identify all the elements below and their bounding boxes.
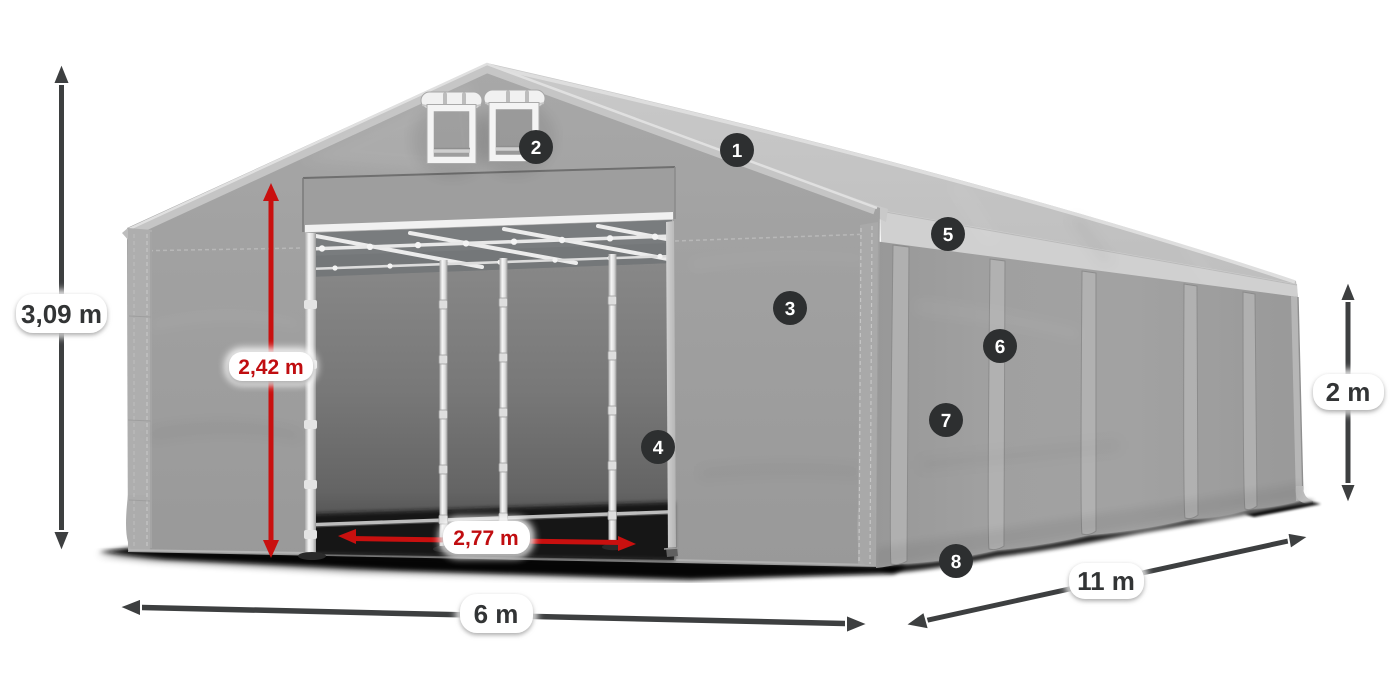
svg-text:4: 4 [653, 438, 664, 459]
svg-text:8: 8 [951, 552, 962, 573]
svg-text:7: 7 [941, 411, 952, 432]
svg-text:2,42 m: 2,42 m [238, 356, 303, 379]
svg-text:2,77 m: 2,77 m [453, 527, 518, 550]
svg-text:5: 5 [943, 225, 954, 246]
svg-text:2 m: 2 m [1326, 377, 1371, 407]
svg-text:3: 3 [785, 299, 796, 320]
svg-text:1: 1 [732, 141, 743, 162]
svg-text:11 m: 11 m [1077, 566, 1135, 596]
svg-text:3,09 m: 3,09 m [21, 299, 102, 329]
svg-text:6 m: 6 m [474, 599, 519, 629]
svg-text:6: 6 [995, 337, 1006, 358]
svg-text:2: 2 [531, 138, 542, 159]
